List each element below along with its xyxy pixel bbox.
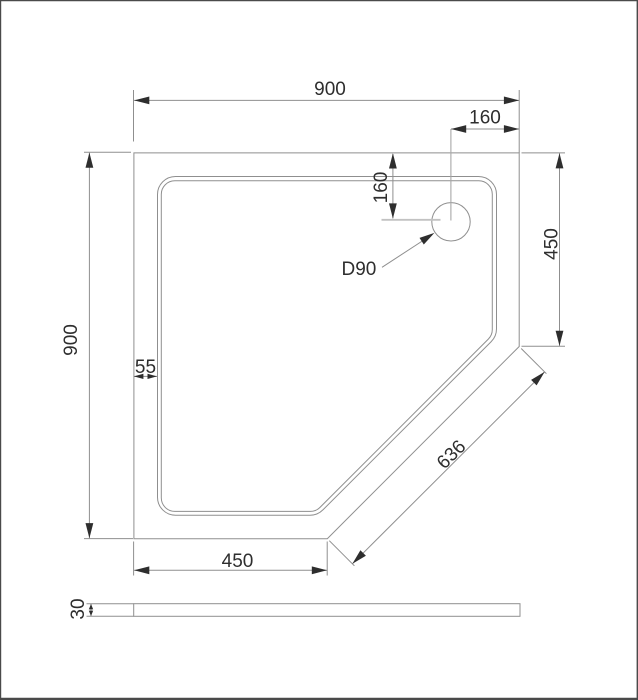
svg-text:30: 30 (68, 598, 89, 619)
svg-text:900: 900 (61, 324, 82, 356)
svg-text:55: 55 (135, 357, 156, 378)
svg-text:900: 900 (314, 79, 346, 100)
svg-text:160: 160 (371, 172, 392, 204)
svg-text:160: 160 (469, 107, 501, 128)
svg-text:450: 450 (542, 228, 563, 260)
svg-text:D90: D90 (342, 259, 377, 280)
svg-text:450: 450 (222, 551, 254, 572)
